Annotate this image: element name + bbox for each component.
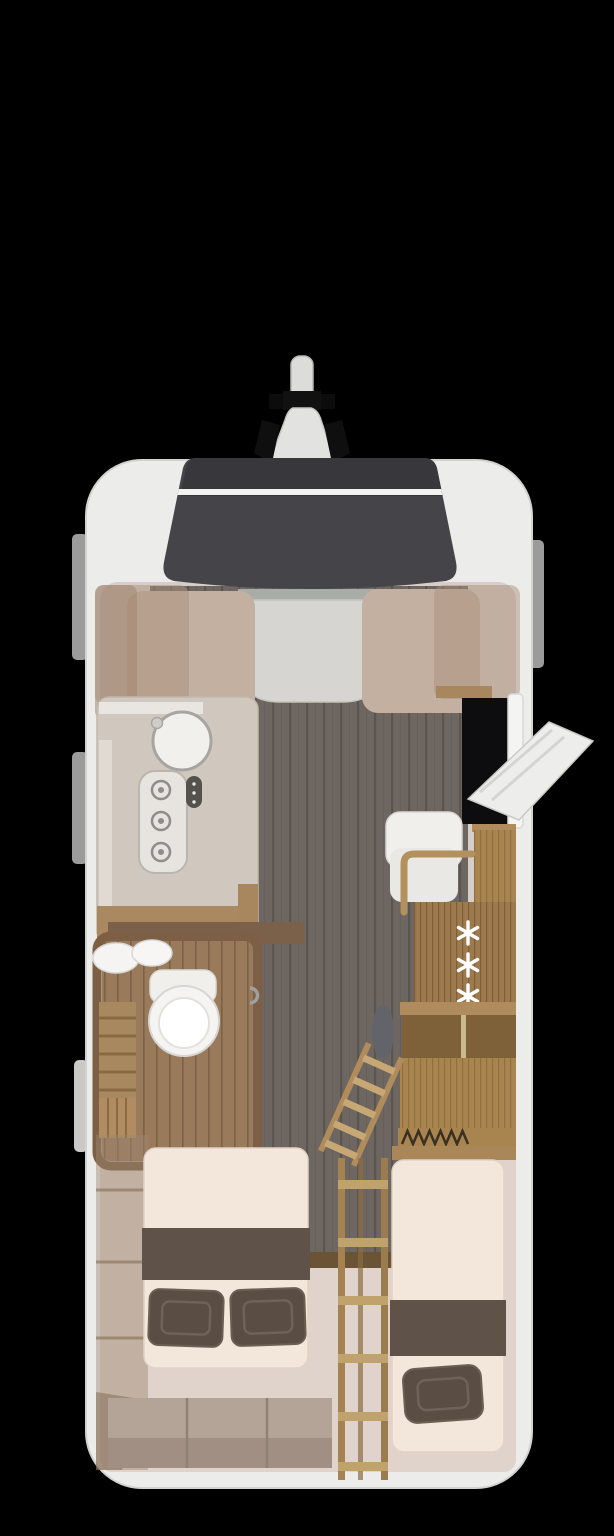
faucet-icon: [152, 718, 163, 729]
french-bed-runner: [142, 1228, 310, 1280]
window-divider-stripe: [174, 489, 445, 495]
kitchen: [97, 697, 258, 943]
toilet-seat: [159, 998, 209, 1048]
ladder-mid-rail: [358, 1158, 363, 1480]
hitch-nub-right: [321, 394, 335, 409]
hitch-nub-left: [269, 394, 283, 409]
side-cabinet: [474, 830, 516, 908]
ladder-rail: [338, 1158, 345, 1480]
bed-step-top: [108, 1398, 332, 1438]
hitch-collar: [283, 391, 321, 410]
overhead-locker-right: [434, 585, 520, 699]
grey-cushion: [372, 1005, 394, 1059]
bed-step-front: [108, 1438, 332, 1468]
single-bed-runner: [390, 1300, 506, 1356]
corridor-threshold: [302, 1252, 392, 1268]
fridge-front: [414, 902, 516, 1004]
shelf-top-1: [400, 1002, 516, 1015]
door-sill: [436, 686, 492, 698]
panoramic-window: [163, 458, 456, 589]
single-bed-head-shelf: [392, 1146, 516, 1160]
french-bed: [96, 1135, 332, 1470]
washbasin: [93, 943, 139, 973]
shelf-top-2: [400, 1058, 516, 1130]
ladder-rail: [381, 1158, 388, 1480]
caravan-floorplan-render: [0, 0, 614, 1536]
single-bed-pillow: [402, 1364, 484, 1423]
bed-pillow-left: [148, 1289, 224, 1348]
kitchen-wall-shelf: [99, 740, 112, 910]
single-bed: [390, 1146, 516, 1452]
bathroom-slat-bench: [99, 1002, 136, 1098]
shelf-interior: [402, 1015, 516, 1059]
washbasin-2: [132, 940, 172, 966]
bed-pillow-right: [230, 1288, 306, 1347]
